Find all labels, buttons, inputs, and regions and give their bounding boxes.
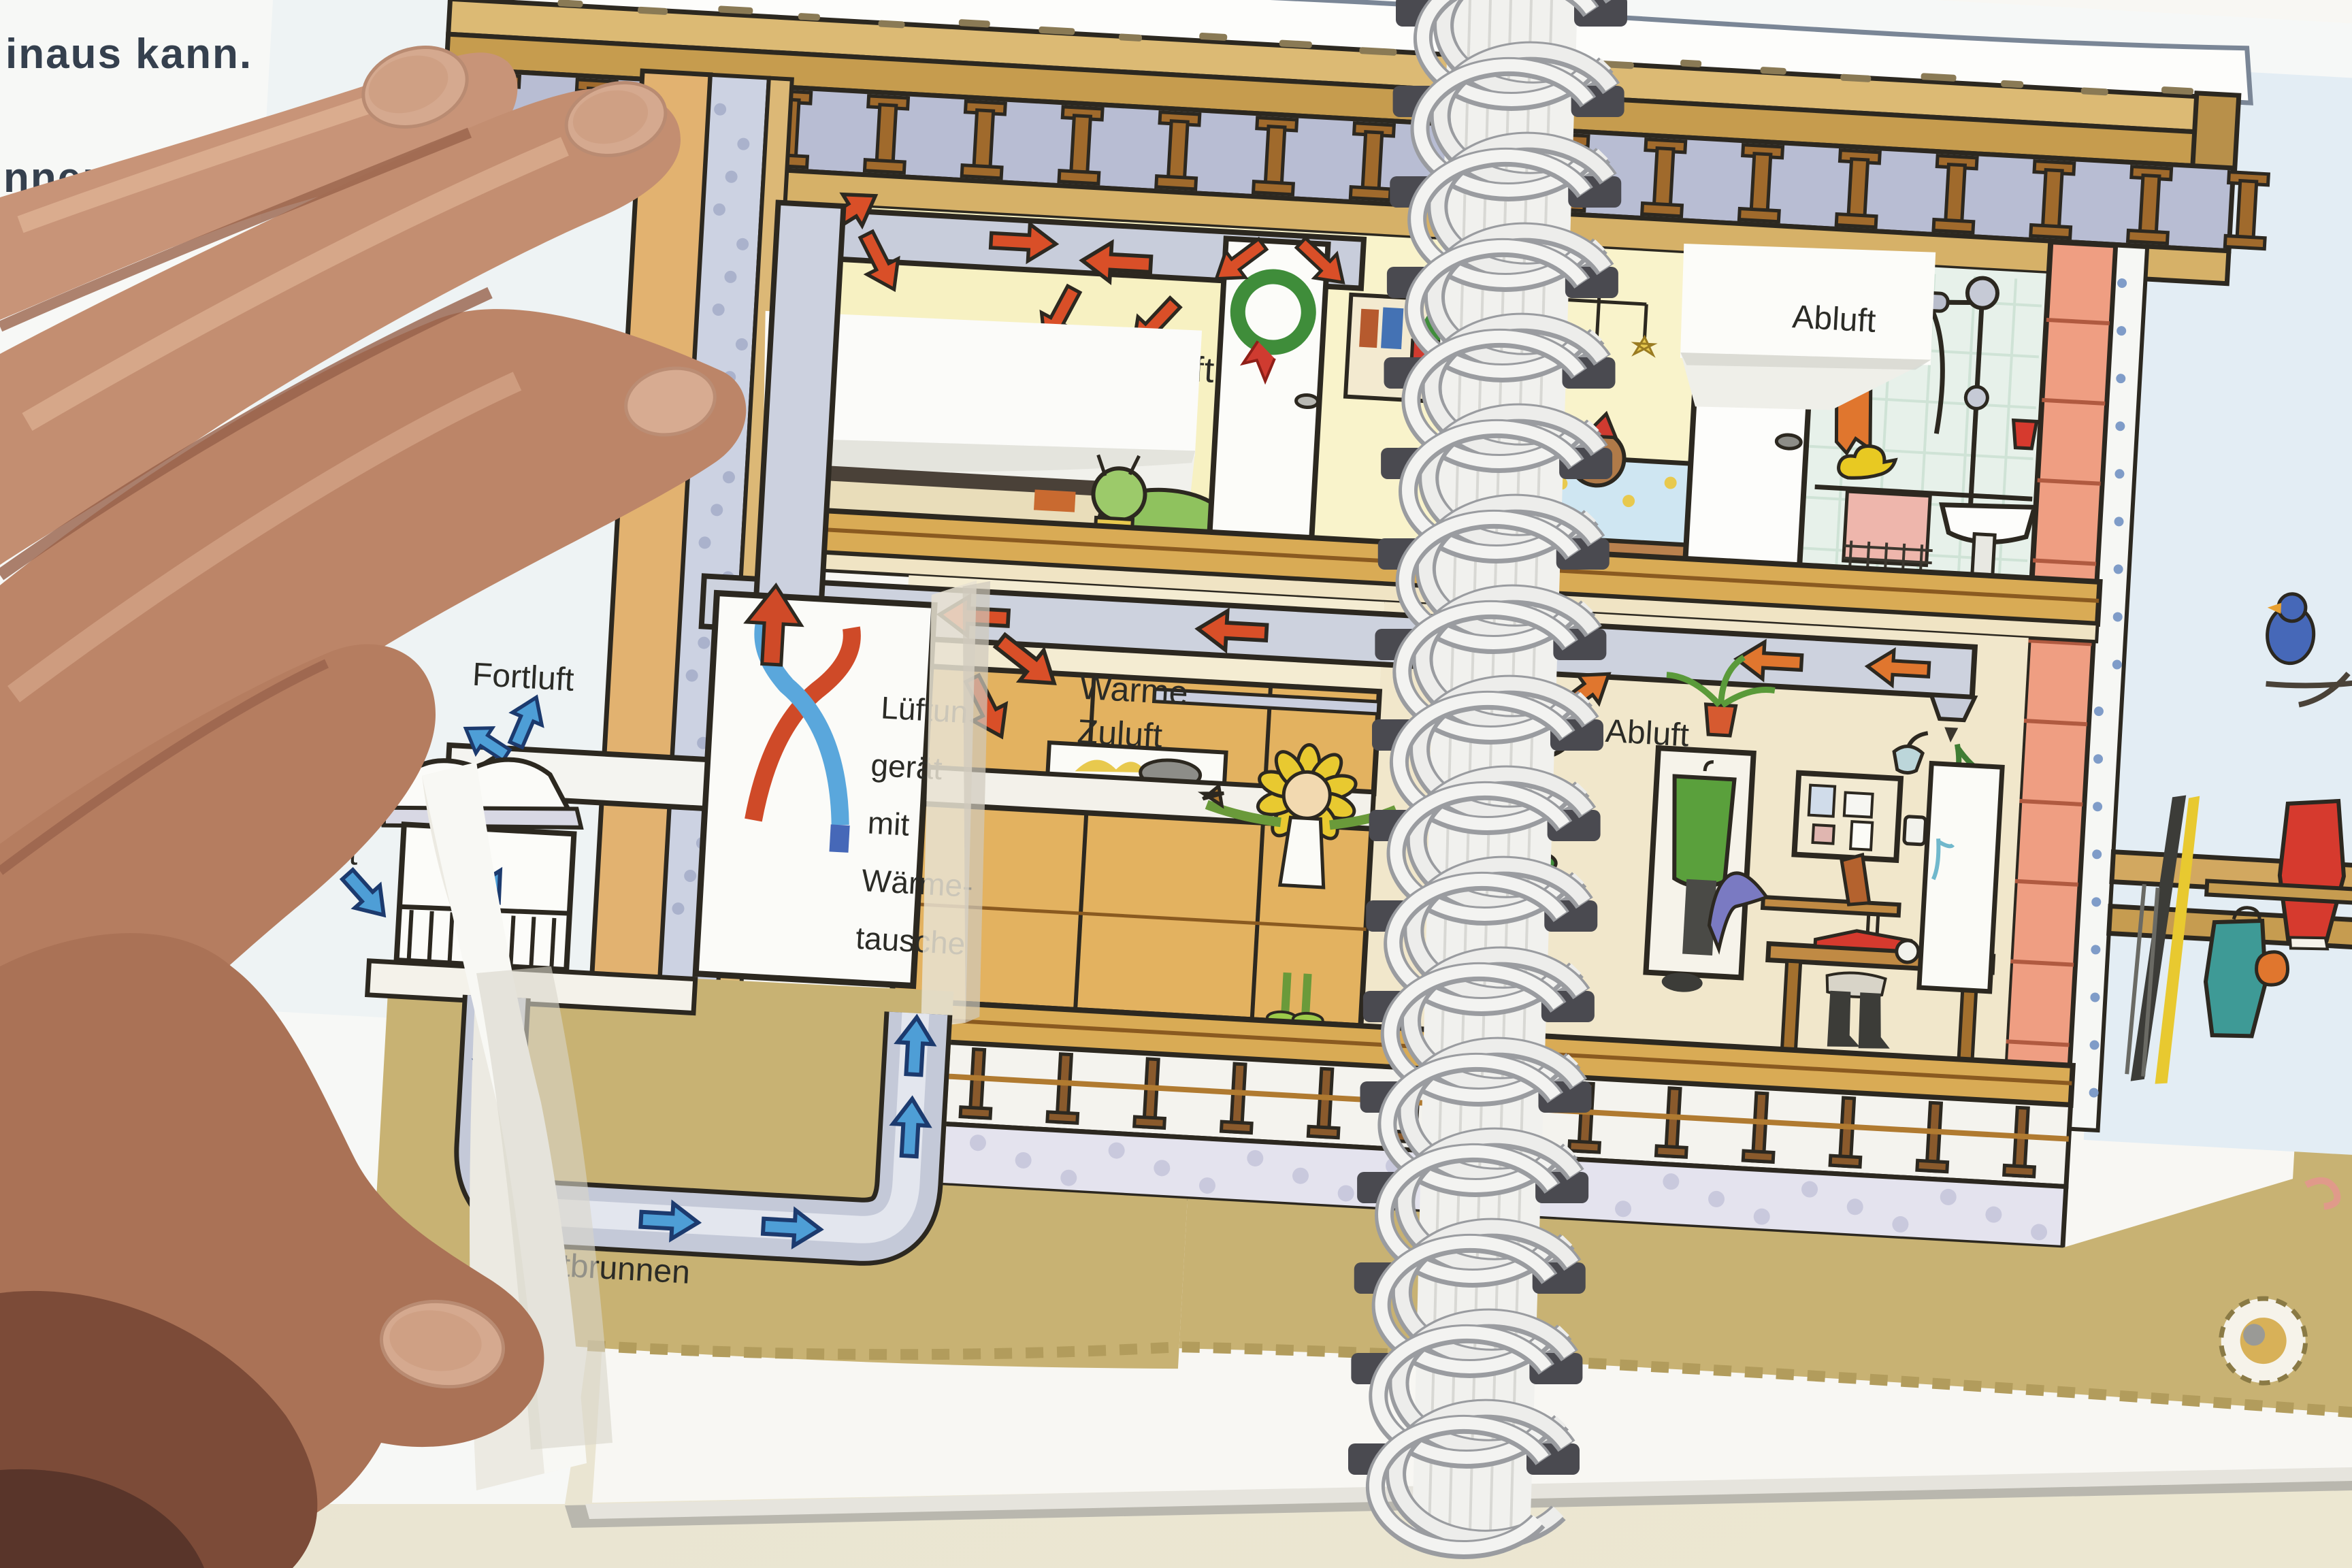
svg-text:mit: mit: [867, 804, 911, 842]
svg-text:Fortluft: Fortluft: [472, 657, 575, 698]
svg-text:inaus kann.: inaus kann.: [5, 31, 252, 78]
svg-text:Warme: Warme: [1079, 668, 1189, 713]
svg-text:Abluft: Abluft: [1791, 299, 1877, 340]
svg-text:Zuluft: Zuluft: [1076, 712, 1163, 755]
